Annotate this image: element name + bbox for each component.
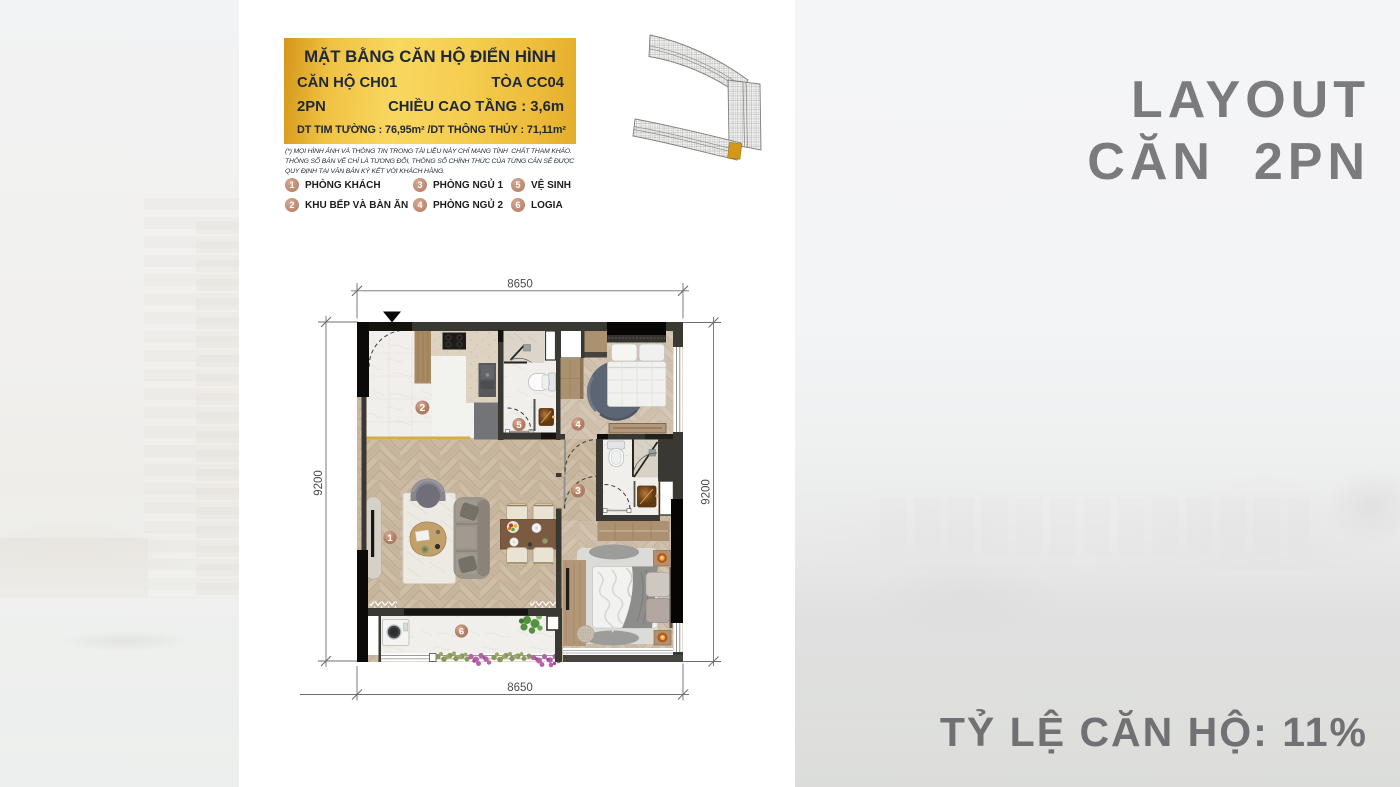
svg-text:5: 5 xyxy=(516,420,522,431)
svg-text:9200: 9200 xyxy=(313,470,325,496)
svg-text:2: 2 xyxy=(420,403,426,414)
svg-text:9200: 9200 xyxy=(701,479,713,505)
svg-text:8650: 8650 xyxy=(507,279,533,291)
svg-text:4: 4 xyxy=(575,419,581,430)
svg-text:3: 3 xyxy=(575,486,581,497)
svg-text:6: 6 xyxy=(459,626,464,637)
svg-text:8650: 8650 xyxy=(507,682,533,694)
svg-text:1: 1 xyxy=(387,533,393,544)
